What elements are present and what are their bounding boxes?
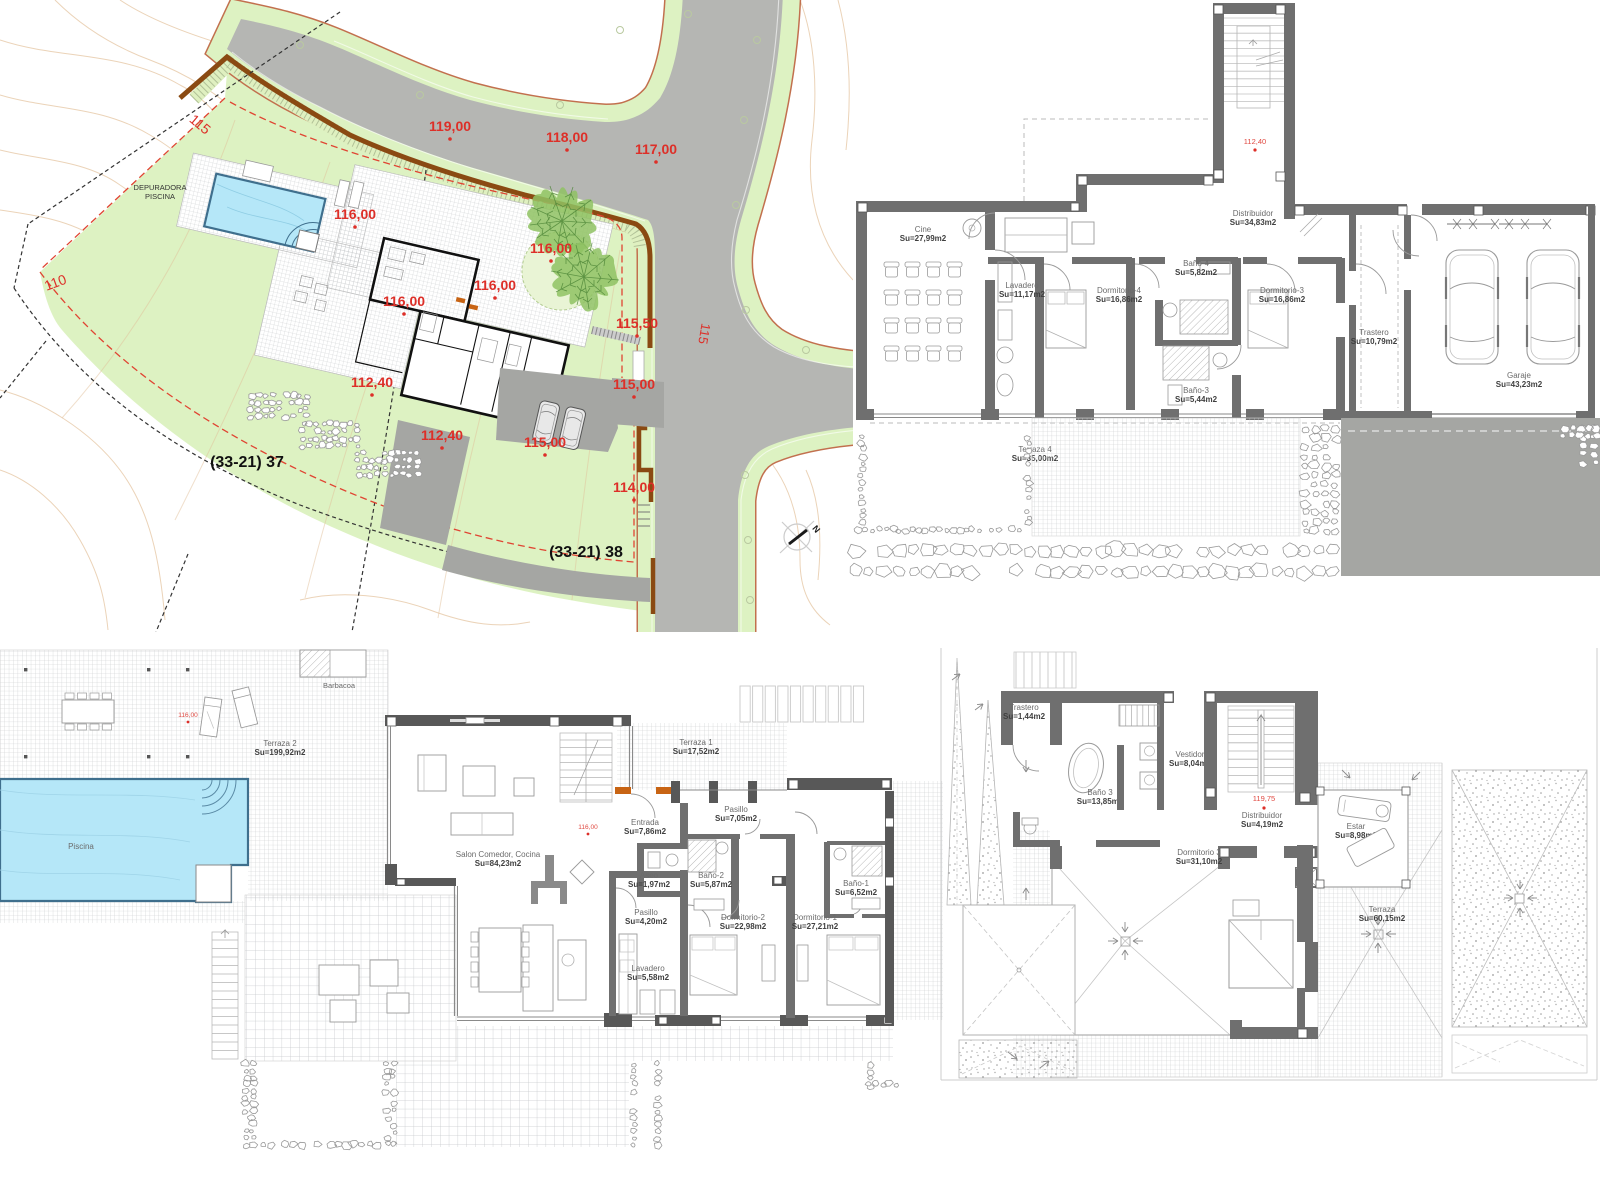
svg-text:Pasillo: Pasillo [634, 908, 658, 917]
svg-text:PISCINA: PISCINA [145, 192, 175, 201]
svg-text:Salon Comedor, Cocina: Salon Comedor, Cocina [456, 850, 541, 859]
svg-text:Distribuidor: Distribuidor [1242, 811, 1283, 820]
svg-text:Baño-1: Baño-1 [843, 879, 869, 888]
svg-text:Distribuidor: Distribuidor [1233, 209, 1274, 218]
svg-text:Su=11,17m2: Su=11,17m2 [999, 290, 1046, 299]
svg-text:116,00: 116,00 [474, 277, 516, 293]
svg-text:116,00: 116,00 [334, 206, 376, 222]
svg-text:Su=31,10m2: Su=31,10m2 [1176, 857, 1223, 866]
svg-text:Dormitorio-3: Dormitorio-3 [1260, 286, 1305, 295]
svg-text:Terraza: Terraza [1369, 905, 1396, 914]
svg-text:115,50: 115,50 [616, 315, 658, 331]
svg-text:Su=5,87m2: Su=5,87m2 [690, 880, 733, 889]
svg-text:Su=60,15m2: Su=60,15m2 [1359, 914, 1406, 923]
svg-text:Su=27,99m2: Su=27,99m2 [900, 234, 947, 243]
svg-text:Su=16,86m2: Su=16,86m2 [1259, 295, 1306, 304]
svg-text:Piscina: Piscina [68, 842, 94, 851]
svg-text:112,40: 112,40 [1244, 137, 1266, 146]
svg-text:Su=13,85m2: Su=13,85m2 [1077, 797, 1124, 806]
svg-text:115,00: 115,00 [613, 376, 655, 392]
svg-text:Trastero: Trastero [1009, 703, 1039, 712]
svg-text:Barbacoa: Barbacoa [323, 681, 356, 690]
svg-text:Vestidor: Vestidor [1176, 750, 1205, 759]
svg-text:Baño-3: Baño-3 [1183, 386, 1209, 395]
svg-text:Su=43,23m2: Su=43,23m2 [1496, 380, 1543, 389]
svg-text:Terraza 1: Terraza 1 [679, 738, 713, 747]
svg-text:Cine: Cine [915, 225, 932, 234]
svg-text:118,00: 118,00 [546, 129, 588, 145]
svg-text:Su=17,52m2: Su=17,52m2 [673, 747, 720, 756]
svg-text:Su=199,92m2: Su=199,92m2 [255, 748, 306, 757]
svg-text:Su=4,20m2: Su=4,20m2 [625, 917, 668, 926]
svg-text:DEPURADORA: DEPURADORA [134, 183, 187, 192]
svg-text:Su=6,52m2: Su=6,52m2 [835, 888, 878, 897]
svg-text:Aseo: Aseo [640, 871, 659, 880]
svg-text:116,00: 116,00 [178, 712, 198, 719]
svg-text:Garaje: Garaje [1507, 371, 1532, 380]
svg-text:Terraza 2: Terraza 2 [263, 739, 297, 748]
svg-text:117,00: 117,00 [635, 141, 677, 157]
svg-text:Su=27,21m2: Su=27,21m2 [792, 922, 839, 931]
svg-text:Dormitorio-1: Dormitorio-1 [793, 913, 838, 922]
svg-text:Su=4,19m2: Su=4,19m2 [1241, 820, 1284, 829]
svg-text:Baño-4: Baño-4 [1183, 259, 1209, 268]
svg-text:Su=16,86m2: Su=16,86m2 [1096, 295, 1143, 304]
svg-text:Pasillo: Pasillo [724, 805, 748, 814]
svg-text:Su=7,86m2: Su=7,86m2 [624, 827, 667, 836]
svg-text:Entrada: Entrada [631, 818, 660, 827]
svg-text:Trastero: Trastero [1359, 328, 1389, 337]
svg-text:Lavadero: Lavadero [1005, 281, 1039, 290]
svg-text:Dormitorio 3: Dormitorio 3 [1177, 848, 1221, 857]
svg-text:116,00: 116,00 [578, 824, 598, 831]
svg-text:Estar: Estar [1347, 822, 1366, 831]
svg-text:Su=7,05m2: Su=7,05m2 [715, 814, 758, 823]
svg-text:119,00: 119,00 [429, 118, 471, 134]
svg-text:119,75: 119,75 [1253, 794, 1275, 803]
svg-text:Su=1,44m2: Su=1,44m2 [1003, 712, 1046, 721]
svg-text:Su=5,44m2: Su=5,44m2 [1175, 395, 1218, 404]
svg-text:Su=10,79m2: Su=10,79m2 [1351, 337, 1398, 346]
svg-text:(33-21) 37: (33-21) 37 [210, 454, 284, 471]
svg-text:112,40: 112,40 [421, 427, 463, 443]
svg-text:Baño-2: Baño-2 [698, 871, 724, 880]
svg-text:Baño 3: Baño 3 [1087, 788, 1113, 797]
svg-text:(33-21) 38: (33-21) 38 [549, 544, 623, 561]
svg-text:Dormitorio-4: Dormitorio-4 [1097, 286, 1142, 295]
svg-text:Dormitorio-2: Dormitorio-2 [721, 913, 766, 922]
svg-text:116,00: 116,00 [530, 240, 572, 256]
svg-text:Su=84,23m2: Su=84,23m2 [475, 859, 522, 868]
svg-text:Su=5,58m2: Su=5,58m2 [627, 973, 670, 982]
svg-text:Lavadero: Lavadero [631, 964, 665, 973]
svg-text:Su=22,98m2: Su=22,98m2 [720, 922, 767, 931]
svg-text:112,40: 112,40 [351, 374, 393, 390]
svg-text:Su=5,82m2: Su=5,82m2 [1175, 268, 1218, 277]
svg-text:116,00: 116,00 [383, 293, 425, 309]
svg-text:115,00: 115,00 [524, 434, 566, 450]
svg-text:114,00: 114,00 [613, 479, 655, 495]
svg-text:Su=1,97m2: Su=1,97m2 [628, 880, 671, 889]
svg-text:Su=34,83m2: Su=34,83m2 [1230, 218, 1277, 227]
